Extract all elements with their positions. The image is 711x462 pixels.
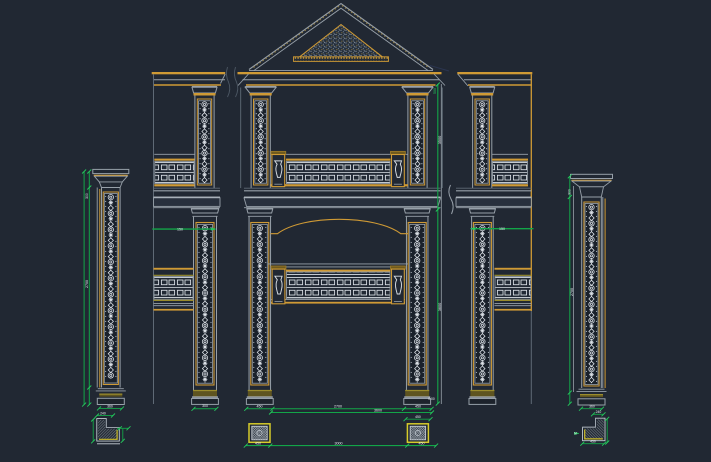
svg-text:450: 450: [255, 441, 261, 445]
svg-text:240: 240: [100, 411, 106, 415]
svg-text:500: 500: [433, 88, 437, 94]
svg-text:2700: 2700: [570, 288, 574, 296]
svg-text:300: 300: [85, 193, 89, 199]
svg-text:3000: 3000: [335, 441, 343, 445]
svg-text:3600: 3600: [438, 303, 442, 311]
svg-text:M: M: [574, 432, 577, 436]
svg-text:450: 450: [590, 440, 596, 444]
svg-text:450: 450: [415, 405, 421, 409]
svg-text:150: 150: [177, 227, 183, 231]
svg-text:450: 450: [415, 415, 421, 419]
svg-text:2700: 2700: [334, 405, 342, 409]
svg-text:300: 300: [568, 189, 572, 195]
svg-text:0.00: 0.00: [428, 397, 435, 401]
svg-text:450: 450: [257, 405, 263, 409]
svg-text:3600: 3600: [374, 408, 382, 412]
svg-text:3500: 3500: [438, 136, 442, 144]
svg-text:2700: 2700: [85, 280, 89, 288]
svg-text:360: 360: [589, 404, 595, 408]
svg-text:360: 360: [107, 404, 113, 408]
svg-text:150: 150: [499, 227, 505, 231]
svg-text:300: 300: [202, 404, 208, 408]
svg-text:240: 240: [596, 410, 602, 414]
svg-text:450: 450: [419, 441, 425, 445]
